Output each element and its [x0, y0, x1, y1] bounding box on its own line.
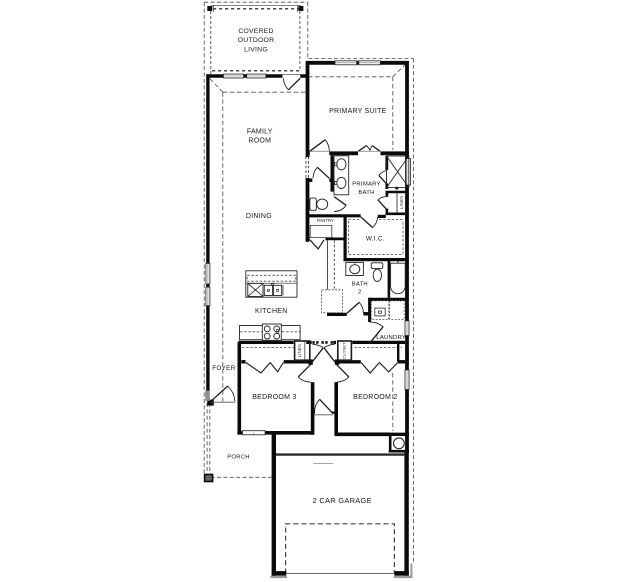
- svg-text:OUTDOOR: OUTDOOR: [238, 37, 275, 44]
- svg-text:LIVING: LIVING: [244, 46, 268, 53]
- svg-text:FOYER: FOYER: [212, 365, 235, 372]
- svg-text:DINING: DINING: [246, 213, 272, 220]
- svg-text:BEDROOM 2: BEDROOM 2: [353, 394, 397, 401]
- svg-text:PRIMARY SUITE: PRIMARY SUITE: [329, 108, 387, 115]
- svg-text:LINEN: LINEN: [297, 344, 302, 358]
- svg-text:2: 2: [358, 290, 362, 296]
- svg-text:PORCH: PORCH: [227, 454, 250, 460]
- svg-text:PRIMARY: PRIMARY: [352, 181, 380, 187]
- svg-text:W.I.C.: W.I.C.: [366, 236, 385, 243]
- svg-text:PANTRY: PANTRY: [317, 218, 334, 223]
- svg-text:KITCHEN: KITCHEN: [255, 308, 287, 315]
- svg-text:BEDROOM 3: BEDROOM 3: [252, 394, 296, 401]
- svg-text:LINEN: LINEN: [399, 196, 404, 210]
- svg-text:BATH: BATH: [352, 281, 368, 287]
- svg-text:FAMILY: FAMILY: [247, 128, 273, 135]
- svg-text:BATH: BATH: [358, 190, 374, 196]
- svg-text:CLOSET: CLOSET: [343, 342, 347, 359]
- svg-text:ROOM: ROOM: [248, 137, 271, 144]
- svg-text:LAUNDRY: LAUNDRY: [376, 335, 406, 341]
- svg-text:2 CAR GARAGE: 2 CAR GARAGE: [313, 496, 372, 505]
- svg-text:COVERED: COVERED: [238, 28, 273, 35]
